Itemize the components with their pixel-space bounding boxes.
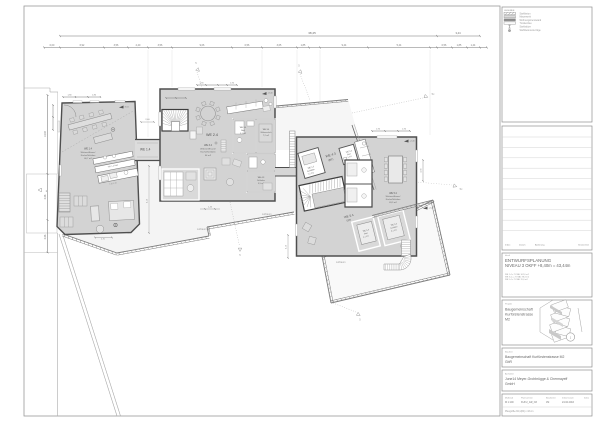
svg-text:3,08: 3,08 <box>44 194 47 199</box>
svg-text:NIVEAU 3 OKFF +8,40m = 43,44m: NIVEAU 3 OKFF +8,40m = 43,44m <box>505 263 571 268</box>
svg-text:9,44: 9,44 <box>342 44 347 47</box>
svg-text:38,45: 38,45 <box>125 107 130 109</box>
svg-text:WE 3.4: WE 3.4 <box>263 129 270 131</box>
svg-text:Küche/Schlafen: Küche/Schlafen <box>386 199 401 201</box>
svg-text:Index: Index <box>505 245 511 247</box>
svg-text:Datum: Datum <box>519 244 526 247</box>
svg-text:Baugemeinschaft: Baugemeinschaft <box>505 308 533 312</box>
svg-text:6,92: 6,92 <box>80 44 85 47</box>
svg-text:+8,40: +8,40 <box>268 93 274 95</box>
svg-text:WE 1.4: WE 1.4 <box>84 148 93 151</box>
svg-text:Luftraum: Luftraum <box>197 228 206 231</box>
svg-text:Stahlbeton: Stahlbeton <box>520 13 532 16</box>
svg-text:3,56: 3,56 <box>158 44 163 47</box>
svg-text:Gezeichnet: Gezeichnet <box>578 244 589 247</box>
svg-text:Trockenbau: Trockenbau <box>520 22 533 25</box>
svg-text:Luftraum: Luftraum <box>262 213 271 216</box>
svg-text:Baugemeinschaft Kurfürstenstra: Baugemeinschaft Kurfürstenstrasse M2 <box>505 355 564 359</box>
svg-text:WE 5.4 = TOTAL 70,6 m2: WE 5.4 = TOTAL 70,6 m2 <box>505 278 529 281</box>
svg-text:WE 5.4: WE 5.4 <box>389 193 397 195</box>
svg-text:Wohnen/Essen/: Wohnen/Essen/ <box>386 196 401 198</box>
svg-text:4,70: 4,70 <box>101 239 105 241</box>
svg-text:WE 4.3: WE 4.3 <box>258 177 265 179</box>
svg-text:Architekt: Architekt <box>505 373 514 376</box>
svg-text:2,40: 2,40 <box>136 44 141 47</box>
svg-text:Bad: Bad <box>241 130 245 132</box>
svg-text:Mauerwerk: Mauerwerk <box>520 16 532 19</box>
svg-text:Kurfürstenstrasse: Kurfürstenstrasse <box>505 313 533 317</box>
svg-text:1,85: 1,85 <box>301 44 306 47</box>
svg-text:38,45: 38,45 <box>308 31 316 35</box>
svg-text:+2,40: +2,40 <box>410 141 416 143</box>
svg-text:Küche/Schlafen: Küche/Schlafen <box>200 152 216 154</box>
svg-text:M2: M2 <box>505 318 510 322</box>
svg-text:Projekt: Projekt <box>505 303 512 306</box>
svg-text:June14 Meyer-Grohbrügge & Cher: June14 Meyer-Grohbrügge & Chermayeff <box>505 377 567 381</box>
svg-text:Index Datum: Index Datum <box>562 397 574 400</box>
svg-text:5,1 m2: 5,1 m2 <box>240 133 247 135</box>
svg-text:66,7 m2: 66,7 m2 <box>84 158 92 160</box>
svg-text:3,56: 3,56 <box>114 44 119 47</box>
svg-text:0,00: 0,00 <box>50 44 55 47</box>
svg-text:Stahlbetonunterzüge: Stahlbetonunterzüge <box>520 29 542 32</box>
svg-text:Wohnen/Essen/: Wohnen/Essen/ <box>200 148 216 150</box>
svg-text:M 1:100: M 1:100 <box>505 401 514 404</box>
svg-text:7,2 m2: 7,2 m2 <box>263 135 270 137</box>
svg-text:WE 1.4: WE 1.4 <box>140 148 151 152</box>
svg-text:24.02.2016: 24.02.2016 <box>562 401 575 404</box>
svg-text:Wohnen/Essen/: Wohnen/Essen/ <box>81 152 96 154</box>
svg-text:+2,40: +2,40 <box>429 208 435 210</box>
svg-text:Inhalt: Inhalt <box>505 254 510 257</box>
svg-text:Plangröße 84,1(84) x 43 cm: Plangröße 84,1(84) x 43 cm <box>505 410 534 413</box>
svg-text:5,44: 5,44 <box>397 44 402 47</box>
svg-text:GmbH: GmbH <box>505 382 515 386</box>
svg-text:1,44: 1,44 <box>471 44 476 47</box>
svg-text:Wohnen/sch: Wohnen/sch <box>260 132 271 134</box>
svg-text:Luftraum: Luftraum <box>336 261 345 264</box>
svg-text:64 m2: 64 m2 <box>205 155 212 157</box>
svg-text:GbR: GbR <box>505 360 513 364</box>
svg-text:3,65: 3,65 <box>277 44 282 47</box>
svg-text:WE 3.4: WE 3.4 <box>204 144 213 147</box>
svg-text:Bauherr: Bauherr <box>505 351 513 354</box>
svg-text:LEGENDE: LEGENDE <box>504 10 515 12</box>
svg-text:3,06: 3,06 <box>44 234 47 239</box>
svg-text:Plannummer: Plannummer <box>521 397 533 400</box>
svg-text:Maßstab: Maßstab <box>505 397 514 400</box>
svg-text:KUFU_GR_N3: KUFU_GR_N3 <box>521 401 537 404</box>
svg-text:9,06: 9,06 <box>200 44 205 47</box>
svg-text:Änderung: Änderung <box>535 244 545 247</box>
svg-text:3,44: 3,44 <box>455 31 461 35</box>
svg-text:WE 2.4: WE 2.4 <box>206 133 218 137</box>
svg-text:Wohnungstrennwand: Wohnungstrennwand <box>520 19 542 22</box>
svg-text:Bearbeitet: Bearbeitet <box>546 397 556 400</box>
svg-text:1,85: 1,85 <box>457 44 462 47</box>
svg-text:JM: JM <box>546 401 549 404</box>
svg-text:Küche/Schlafen: Küche/Schlafen <box>81 155 96 157</box>
svg-text:0,56: 0,56 <box>442 44 447 47</box>
svg-text:0,56: 0,56 <box>245 44 250 47</box>
svg-text:Stahlstütze: Stahlstütze <box>520 26 532 29</box>
svg-text:63,9 m2: 63,9 m2 <box>389 202 397 204</box>
svg-text:WE 3.4: WE 3.4 <box>240 127 247 129</box>
svg-text:10,94: 10,94 <box>44 130 47 137</box>
svg-text:Schlafen: Schlafen <box>257 180 265 182</box>
